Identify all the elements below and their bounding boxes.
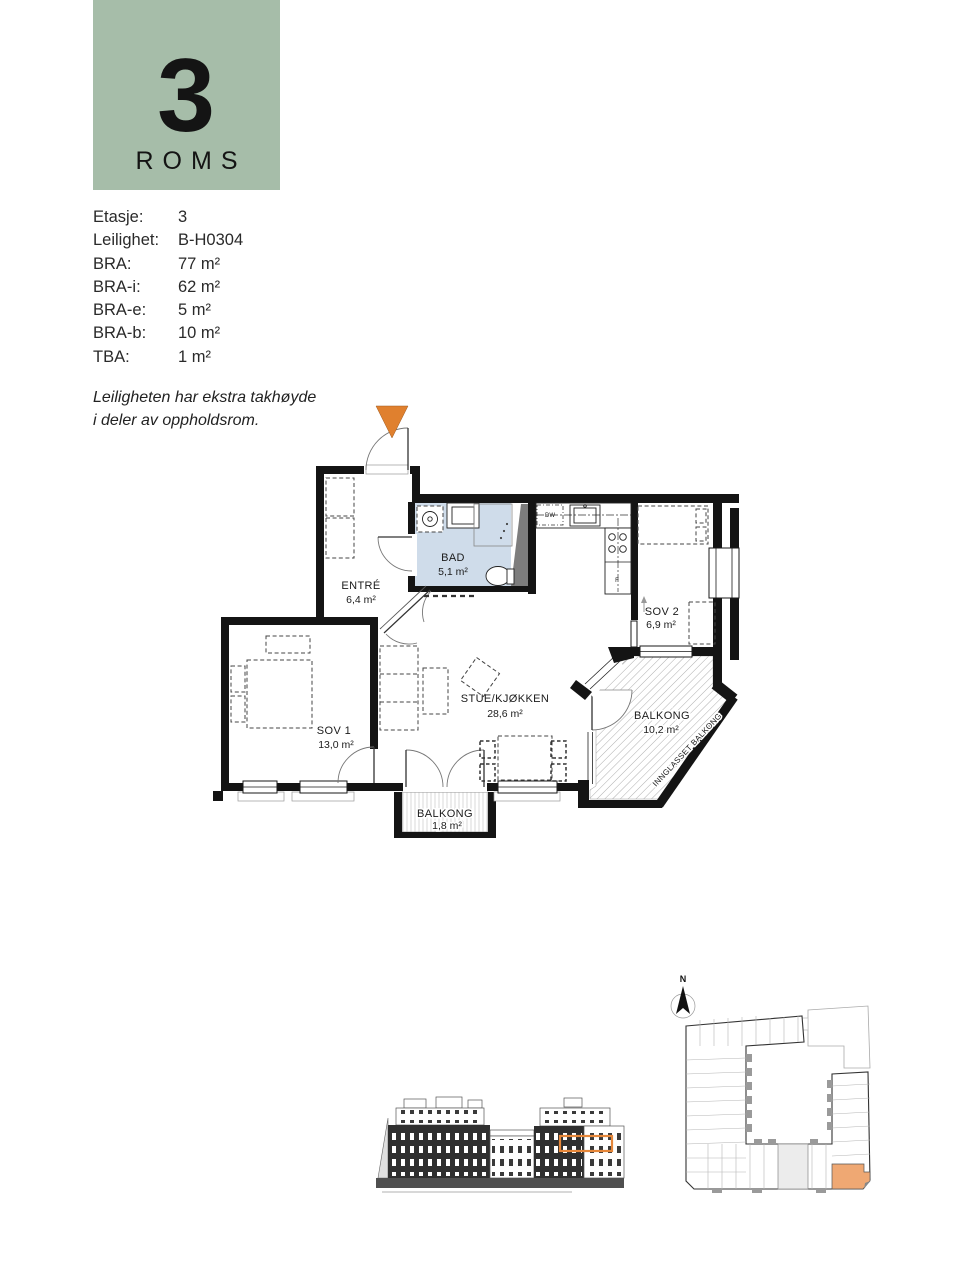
bed-1	[247, 660, 312, 728]
armchair	[461, 658, 500, 697]
room-label-sov1: SOV 1	[317, 725, 351, 737]
dining-table	[498, 736, 552, 780]
room-area-balkong: 10,2 m²	[643, 724, 679, 736]
toilet-icon	[486, 567, 510, 586]
room-label-balkong2: BALKONG	[417, 808, 473, 820]
detail-row-bra-b: BRA-b: 10 m²	[93, 322, 333, 345]
highlighted-apartment-site	[832, 1164, 870, 1189]
coffee-table	[423, 668, 448, 714]
ground	[376, 1178, 624, 1188]
room-count-label: ROMS	[136, 147, 247, 176]
site-plan: N	[652, 962, 888, 1208]
detail-value: 3	[178, 206, 333, 229]
room-label-stue: STUE/KJØKKEN	[461, 693, 550, 705]
french-doors	[403, 750, 487, 792]
washer-icon	[417, 506, 443, 532]
detail-value: 77 m²	[178, 253, 333, 276]
building-elevation	[372, 1078, 628, 1198]
room-label-balkong: BALKONG	[634, 710, 690, 722]
detail-label: BRA-e:	[93, 299, 178, 322]
entrance-marker-icon	[376, 406, 408, 438]
room-label-bad: BAD	[441, 552, 465, 564]
detail-row-etasje: Etasje: 3	[93, 206, 333, 229]
detail-row-bra: BRA: 77 m²	[93, 253, 333, 276]
detail-label: Etasje:	[93, 206, 178, 229]
room-label-sov2: SOV 2	[645, 606, 679, 618]
kitchen-fixtures: DW F	[536, 503, 631, 594]
detail-label: BRA-i:	[93, 276, 178, 299]
north-arrow-icon: N	[671, 974, 695, 1018]
detail-value: 62 m²	[178, 276, 333, 299]
detail-label: TBA:	[93, 346, 178, 369]
room-area-stue: 28,6 m²	[487, 708, 523, 720]
detail-row-tba: TBA: 1 m²	[93, 346, 333, 369]
sofa	[380, 646, 418, 730]
detail-row-leilighet: Leilighet: B-H0304	[93, 229, 333, 252]
detail-label: BRA-b:	[93, 322, 178, 345]
fridge-label: F	[615, 578, 619, 584]
detail-value: 5 m²	[178, 299, 333, 322]
bedroom1-door	[338, 747, 374, 783]
arrow-icon	[641, 596, 647, 603]
detail-value: 10 m²	[178, 322, 333, 345]
apartment-details: Etasje: 3 Leilighet: B-H0304 BRA: 77 m² …	[93, 206, 333, 369]
detail-value: B-H0304	[178, 229, 333, 252]
room-area-entre: 6,4 m²	[346, 594, 376, 606]
room-label-entre: ENTRÉ	[341, 579, 380, 592]
detail-value: 1 m²	[178, 346, 333, 369]
bed-2	[638, 506, 708, 544]
room-area-bad: 5,1 m²	[438, 566, 468, 578]
floor-plan: DW F	[210, 400, 750, 840]
detail-row-bra-e: BRA-e: 5 m²	[93, 299, 333, 322]
hall-double-door	[380, 586, 431, 644]
detail-row-bra-i: BRA-i: 62 m²	[93, 276, 333, 299]
room-count-number: 3	[157, 51, 216, 143]
detail-label: BRA:	[93, 253, 178, 276]
room-area-balkong2: 1,8 m²	[432, 820, 462, 832]
brochure-page: 3 ROMS Etasje: 3 Leilighet: B-H0304 BRA:…	[0, 0, 960, 1280]
entrance-door	[364, 428, 410, 476]
elevation-buildings	[376, 1097, 624, 1192]
bathroom-door	[378, 534, 417, 576]
north-label: N	[680, 974, 687, 984]
room-area-sov1: 13,0 m²	[318, 739, 354, 751]
dishwasher-label: DW	[545, 513, 555, 519]
room-count-badge: 3 ROMS	[93, 0, 280, 190]
room-area-sov2: 6,9 m²	[646, 619, 676, 631]
detail-label: Leilighet:	[93, 229, 178, 252]
